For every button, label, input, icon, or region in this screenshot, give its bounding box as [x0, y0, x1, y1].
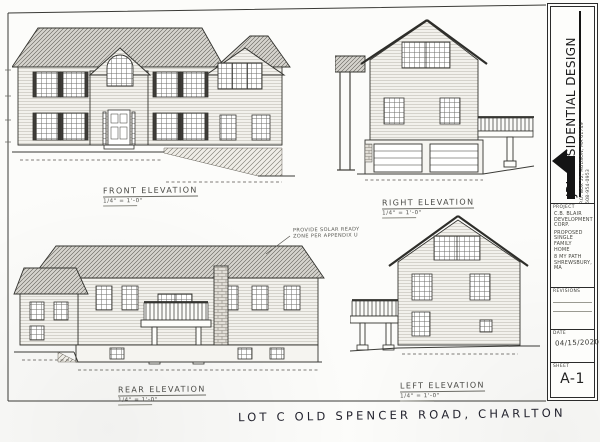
- rear-wing-wall: [20, 294, 78, 345]
- sheet-number: A-1: [553, 371, 592, 387]
- revision-rule: [553, 294, 592, 303]
- date-section: DATE 04/15/2020: [551, 329, 594, 362]
- project-label: PROJECT: [553, 205, 592, 210]
- garage-gable-window: [218, 63, 262, 89]
- left-deck-railing: [350, 300, 398, 350]
- rear-basement: [76, 345, 318, 362]
- drawing-sheet: FRONT ELEVATION 1/4" = 1'-0": [0, 0, 600, 442]
- front-grade: [12, 145, 295, 182]
- project-location: 8 MY PATH SHREWSBURY, MA: [554, 255, 592, 272]
- project-type: PROPOSED SINGLE FAMILY HOME: [554, 231, 592, 253]
- front-door: [103, 110, 135, 149]
- logo-arrow-icon: [552, 145, 576, 203]
- rear-elevation-label: REAR ELEVATION 1/4" = 1'-0": [118, 377, 206, 406]
- left-elevation-drawing: [350, 212, 542, 374]
- revision-rule: [553, 303, 592, 312]
- right-deck-railing: [478, 117, 534, 167]
- front-elevation-label: FRONT ELEVATION 1/4" = 1'-0": [103, 178, 198, 207]
- front-elevation-drawing: [12, 24, 297, 184]
- title-block: JRL RESIDENTIAL DESIGN P.O. BOX 52, HUDS…: [547, 3, 598, 401]
- revisions-section: REVISIONS: [551, 287, 594, 329]
- left-elevation-label: LEFT ELEVATION 1/4" = 1'-0": [400, 373, 485, 402]
- title-block-inner: JRL RESIDENTIAL DESIGN P.O. BOX 52, HUDS…: [550, 6, 595, 398]
- arched-window: [107, 55, 133, 86]
- project-client: C.B. BLAIR DEVELOPMENT CORP.: [554, 212, 592, 229]
- sheet-section: SHEET A-1: [551, 362, 594, 398]
- date-value: 04/15/2020: [555, 338, 592, 347]
- right-porch-sliver: [335, 56, 365, 170]
- date-label: DATE: [553, 331, 592, 336]
- left-grade: [350, 346, 540, 354]
- brick-pier: [365, 144, 372, 162]
- rear-wing-roof: [14, 268, 88, 294]
- right-elevation-drawing: [335, 18, 540, 198]
- company-address: P.O. BOX 52, HUDSON, MA 01749 508-954-09…: [580, 96, 591, 204]
- sheet-label: SHEET: [553, 364, 592, 369]
- project-section: PROJECT C.B. BLAIR DEVELOPMENT CORP. PRO…: [551, 203, 594, 287]
